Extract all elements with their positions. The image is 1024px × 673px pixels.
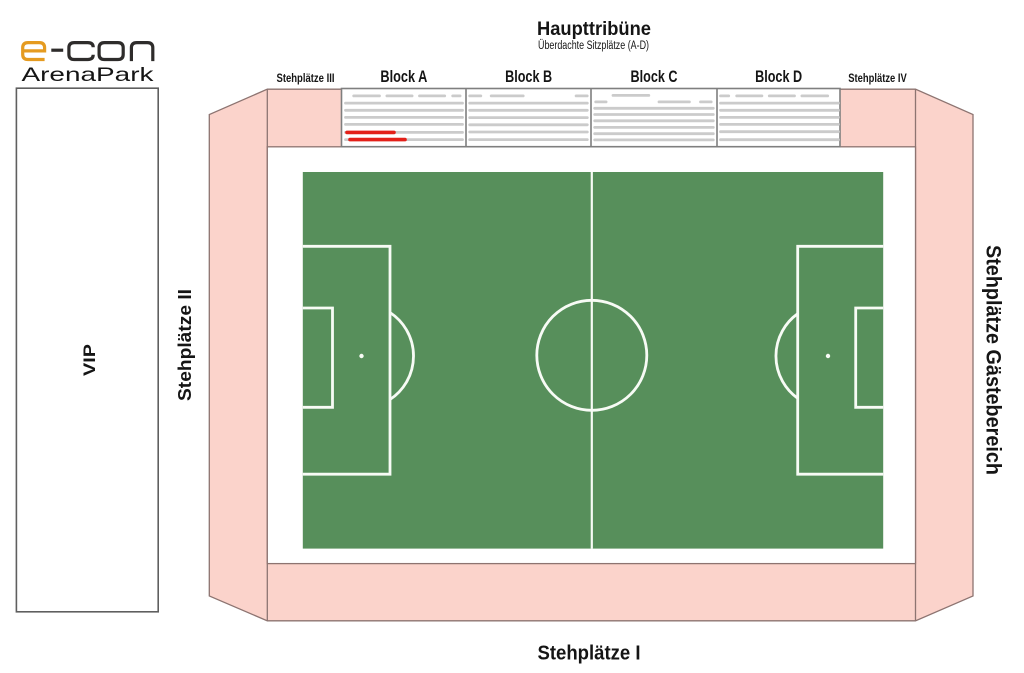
svg-text:Stehplätze I: Stehplätze I — [538, 643, 641, 665]
svg-text:Block B: Block B — [505, 68, 552, 86]
svg-text:Überdachte Sitzplätze (A-D): Überdachte Sitzplätze (A-D) — [538, 40, 649, 52]
svg-text:Stehplätze III: Stehplätze III — [277, 71, 335, 85]
svg-text:ArenaPark: ArenaPark — [22, 64, 154, 86]
svg-text:Block D: Block D — [755, 68, 802, 86]
svg-text:VIP: VIP — [81, 344, 99, 376]
svg-text:Block A: Block A — [380, 68, 427, 86]
svg-text:Stehplätze IV: Stehplätze IV — [848, 71, 907, 85]
svg-text:Stehplätze Gästebereich: Stehplätze Gästebereich — [982, 245, 1005, 475]
svg-text:Haupttribüne: Haupttribüne — [537, 18, 651, 40]
svg-text:Stehplätze II: Stehplätze II — [175, 289, 195, 401]
svg-text:Block C: Block C — [631, 68, 678, 86]
